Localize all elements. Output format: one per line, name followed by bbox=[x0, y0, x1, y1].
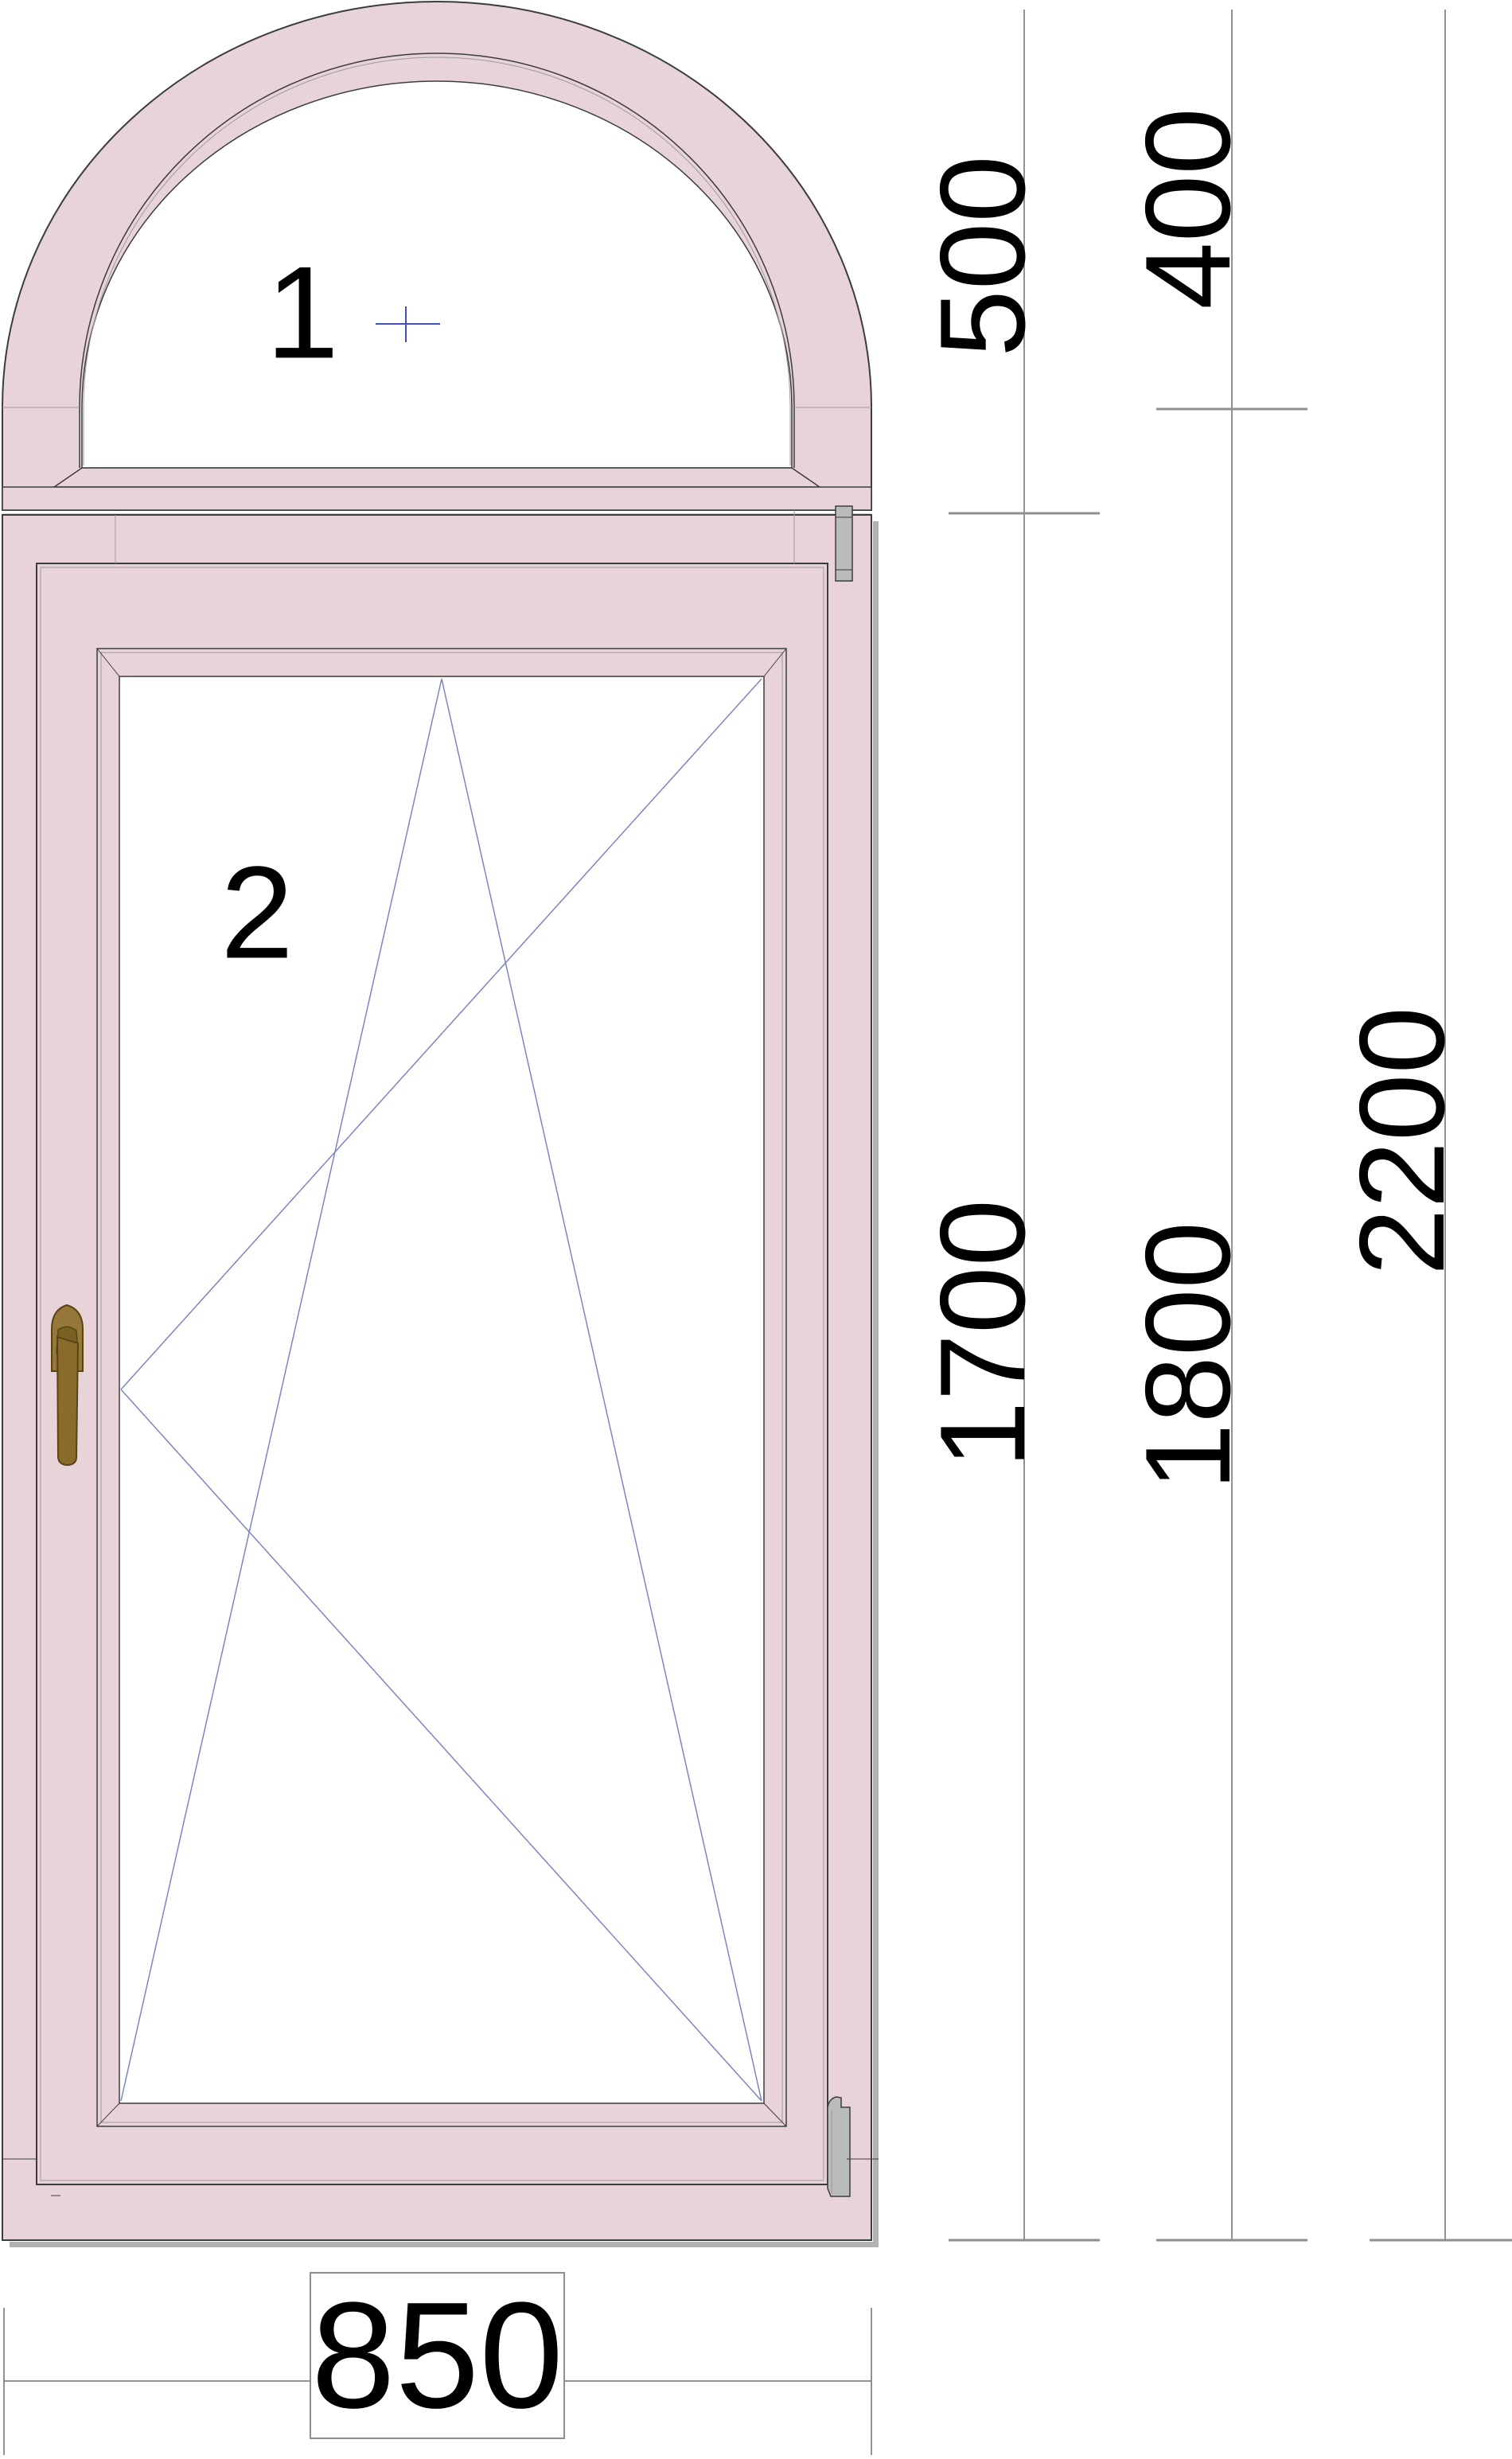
arch-frame-bottom-strip bbox=[2, 487, 871, 510]
dim-label-lower-section-height: 1800 bbox=[1128, 1222, 1249, 1491]
dim-label-arch-rise: 400 bbox=[1128, 107, 1249, 310]
handle-grip bbox=[57, 1337, 78, 1465]
window-right-shadow bbox=[873, 521, 879, 2247]
arch-sash-bottom-rail bbox=[54, 468, 820, 487]
dim-label-total-width-box: 850 bbox=[310, 2272, 565, 2439]
dim-label-arch-height: 500 bbox=[922, 155, 1043, 357]
dim-label-sash-opening-height: 1700 bbox=[922, 1199, 1043, 1468]
sash-glass-section-2[interactable] bbox=[119, 676, 764, 2103]
section-1-label: 1 bbox=[266, 247, 339, 379]
window-bottom-shadow bbox=[10, 2242, 879, 2247]
hinge-top-icon bbox=[836, 506, 852, 581]
dim-label-total-width: 850 bbox=[311, 2280, 563, 2431]
window-drawing-canvas: 1 2 500 400 1700 1800 2200 850 bbox=[0, 0, 1512, 2459]
dim-label-total-height: 2200 bbox=[1342, 1007, 1463, 1276]
window-drawing bbox=[0, 0, 1512, 2459]
section-2-label: 2 bbox=[220, 848, 294, 979]
